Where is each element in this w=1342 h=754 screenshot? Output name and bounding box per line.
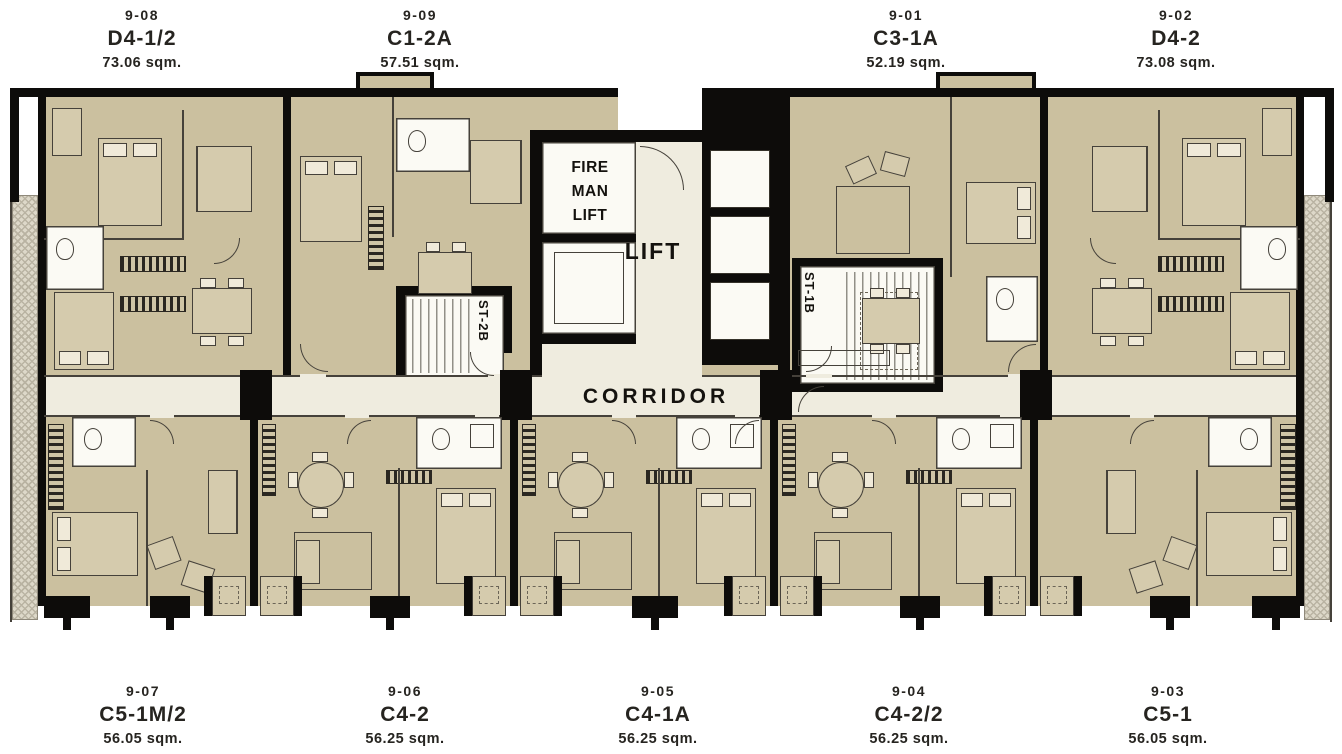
lift-lobby-label: LIFT <box>610 240 696 263</box>
corridor-floor <box>542 344 636 377</box>
furniture <box>1262 108 1292 156</box>
wall <box>504 295 512 353</box>
service-room <box>1240 226 1298 290</box>
corridor-floor <box>806 374 832 378</box>
toilet-icon <box>1240 428 1258 450</box>
wall <box>984 576 992 616</box>
service-room <box>72 417 136 467</box>
wall <box>1040 97 1048 375</box>
service-room <box>46 226 104 290</box>
corridor-floor <box>345 414 369 418</box>
partition-line <box>950 97 952 277</box>
furniture <box>470 140 522 204</box>
unit-label-9-01: 9-01 C3-1A 52.19 sqm. <box>866 8 945 71</box>
unit-type: D4-2 <box>1136 28 1215 49</box>
wall <box>1296 97 1304 606</box>
unit-label-9-02: 9-02 D4-2 73.08 sqm. <box>1136 8 1215 71</box>
wardrobe <box>386 470 432 484</box>
wall <box>778 97 790 377</box>
unit-number: 9-05 <box>618 684 697 698</box>
wall <box>1020 370 1052 420</box>
wall <box>464 576 472 616</box>
chair <box>896 288 910 298</box>
stair-landing <box>787 586 807 604</box>
wall <box>38 97 46 606</box>
corridor-floor <box>542 374 702 378</box>
fireman-line: MAN <box>548 180 632 204</box>
void <box>618 88 702 130</box>
unit-area: 73.06 sqm. <box>102 56 181 71</box>
wall <box>370 596 410 618</box>
toilet-icon <box>996 288 1014 310</box>
chair <box>228 278 244 288</box>
wall <box>724 576 732 616</box>
toilet-icon <box>432 428 450 450</box>
unit-area: 56.05 sqm. <box>1128 732 1207 747</box>
chair <box>228 336 244 346</box>
service-room <box>986 276 1038 342</box>
unit-area: 56.25 sqm. <box>365 732 444 747</box>
partition-line <box>520 140 522 204</box>
wall <box>632 596 678 618</box>
chair <box>1100 336 1116 346</box>
wardrobe <box>646 470 692 484</box>
wall <box>1272 618 1280 630</box>
chair <box>312 508 328 518</box>
chair <box>288 472 298 488</box>
unit-number: 9-06 <box>365 684 444 698</box>
furniture <box>1106 470 1136 534</box>
lift-car <box>710 216 770 274</box>
corridor-label: CORRIDOR <box>506 386 806 407</box>
wardrobe <box>782 424 796 496</box>
unit-area: 57.51 sqm. <box>380 56 459 71</box>
chair <box>604 472 614 488</box>
unit-area: 56.05 sqm. <box>99 732 187 747</box>
toilet-icon <box>692 428 710 450</box>
furniture-outline <box>470 424 494 448</box>
unit-type: C4-2/2 <box>869 704 948 725</box>
wall <box>935 266 943 390</box>
wall <box>150 596 190 618</box>
chair <box>452 242 466 252</box>
unit-area: 56.25 sqm. <box>618 732 697 747</box>
unit-number: 9-02 <box>1136 8 1215 22</box>
wall <box>1252 596 1300 618</box>
chair <box>1128 278 1144 288</box>
unit-type: C4-1A <box>618 704 697 725</box>
wardrobe <box>1280 424 1296 510</box>
wall <box>900 596 940 618</box>
wall <box>63 618 71 630</box>
stair-treads <box>412 299 472 373</box>
unit-label-9-08: 9-08 D4-1/2 73.06 sqm. <box>102 8 181 71</box>
wall <box>283 97 291 375</box>
wall <box>554 576 562 616</box>
wall <box>166 618 174 630</box>
unit-label-9-09: 9-09 C1-2A 57.51 sqm. <box>380 8 459 71</box>
corridor-floor <box>872 414 896 418</box>
unit-label-9-04: 9-04 C4-2/2 56.25 sqm. <box>869 684 948 747</box>
wall <box>792 258 943 266</box>
bed <box>696 488 756 584</box>
stair-landing <box>527 586 547 604</box>
bed <box>966 182 1036 244</box>
partition-line <box>1146 146 1148 212</box>
wardrobe <box>906 470 952 484</box>
furniture <box>862 298 920 344</box>
unit-number: 9-09 <box>380 8 459 22</box>
chair <box>312 452 328 462</box>
wardrobe <box>48 424 64 510</box>
balcony-hatch <box>1304 195 1330 620</box>
unit-label-9-06: 9-06 C4-2 56.25 sqm. <box>365 684 444 747</box>
chair <box>1100 278 1116 288</box>
chair <box>870 288 884 298</box>
corridor-floor <box>150 414 174 418</box>
wall <box>651 618 659 630</box>
furniture <box>1092 146 1148 212</box>
partition-line <box>44 415 1296 417</box>
lift-car <box>710 282 770 340</box>
wall <box>386 618 394 630</box>
corridor-floor <box>300 374 326 378</box>
stair-landing <box>739 586 759 604</box>
unit-number: 9-01 <box>866 8 945 22</box>
stair-landing <box>479 586 499 604</box>
toilet-icon <box>408 130 426 152</box>
unit-area: 56.25 sqm. <box>869 732 948 747</box>
chair <box>1128 336 1144 346</box>
bed <box>1206 512 1292 576</box>
wall <box>916 618 924 630</box>
chair <box>572 452 588 462</box>
partition-line <box>1158 110 1160 240</box>
furniture <box>196 146 252 212</box>
chair <box>548 472 558 488</box>
floor-plan-drawing <box>0 0 1342 754</box>
chair <box>200 336 216 346</box>
wardrobe <box>120 296 186 312</box>
wall <box>250 417 258 606</box>
wall <box>510 417 518 606</box>
unit-area: 52.19 sqm. <box>866 56 945 71</box>
bed <box>54 292 114 370</box>
unit-floor <box>940 76 1032 88</box>
partition-line <box>182 110 184 240</box>
fireman-line: FIRE <box>548 156 632 180</box>
wardrobe <box>368 206 384 270</box>
partition-line <box>1330 202 1332 622</box>
unit-label-9-05: 9-05 C4-1A 56.25 sqm. <box>618 684 697 747</box>
fireman-line: LIFT <box>548 204 632 228</box>
dining-table <box>558 462 604 508</box>
service-room <box>396 118 470 172</box>
furniture <box>52 108 82 156</box>
wall <box>1166 618 1174 630</box>
lift-car <box>710 150 770 208</box>
chair <box>832 452 848 462</box>
wall <box>240 370 272 420</box>
unit-label-9-03: 9-03 C5-1 56.05 sqm. <box>1128 684 1207 747</box>
wardrobe <box>120 256 186 272</box>
stair-landing <box>219 586 239 604</box>
unit-number: 9-04 <box>869 684 948 698</box>
stair-st2b-label: ST-2B <box>476 300 491 370</box>
toilet-icon <box>952 428 970 450</box>
toilet-icon <box>1268 238 1286 260</box>
unit-floor <box>360 76 430 88</box>
wall <box>44 596 90 618</box>
wall <box>770 417 778 606</box>
wall <box>204 576 212 616</box>
chair <box>832 508 848 518</box>
wall <box>530 130 702 142</box>
toilet-icon <box>56 238 74 260</box>
furniture <box>1092 288 1152 334</box>
wall <box>814 576 822 616</box>
unit-number: 9-07 <box>99 684 187 698</box>
wall <box>542 334 636 344</box>
bed <box>300 156 362 242</box>
chair <box>344 472 354 488</box>
partition-line <box>658 468 660 606</box>
furniture-outline <box>990 424 1014 448</box>
wall <box>1325 88 1334 202</box>
wall <box>396 286 405 377</box>
stair-st1b-label: ST-1B <box>802 272 817 346</box>
chair <box>864 472 874 488</box>
furniture <box>192 288 252 334</box>
wardrobe <box>522 424 536 496</box>
furniture <box>208 470 238 534</box>
unit-type: C1-2A <box>380 28 459 49</box>
furniture <box>418 252 472 294</box>
unit-type: C5-1M/2 <box>99 704 187 725</box>
wall <box>530 130 542 377</box>
corridor-floor <box>1130 414 1154 418</box>
bed <box>52 512 138 576</box>
chair <box>572 508 588 518</box>
partition-line <box>398 468 400 606</box>
bed <box>98 138 162 226</box>
wardrobe <box>1158 296 1224 312</box>
stair-landing <box>267 586 287 604</box>
partition-line <box>146 470 148 606</box>
wall <box>1074 576 1082 616</box>
partition-line <box>236 470 238 534</box>
furniture-outline <box>836 186 910 254</box>
dining-table <box>818 462 864 508</box>
unit-type: C4-2 <box>365 704 444 725</box>
wall <box>1150 596 1190 618</box>
stair-landing <box>1047 586 1067 604</box>
partition-line <box>196 146 198 212</box>
unit-label-9-07: 9-07 C5-1M/2 56.05 sqm. <box>99 684 187 747</box>
bed <box>1230 292 1290 370</box>
wall <box>1030 417 1038 606</box>
unit-area: 73.08 sqm. <box>1136 56 1215 71</box>
wall <box>10 88 19 202</box>
bed <box>1182 138 1246 226</box>
chair <box>426 242 440 252</box>
wall <box>792 258 800 390</box>
partition-line <box>10 202 12 622</box>
bed <box>436 488 496 584</box>
toilet-icon <box>84 428 102 450</box>
corridor-floor <box>612 414 636 418</box>
partition-line <box>1196 470 1198 606</box>
chair <box>896 344 910 354</box>
unit-type: C5-1 <box>1128 704 1207 725</box>
partition-line <box>1106 470 1108 534</box>
unit-type: C3-1A <box>866 28 945 49</box>
floor-plan-page: 9-08 D4-1/2 73.06 sqm. 9-09 C1-2A 57.51 … <box>0 0 1342 754</box>
wardrobe <box>1158 256 1224 272</box>
balcony-hatch <box>12 195 38 620</box>
fireman-lift-label: FIRE MAN LIFT <box>548 156 632 228</box>
partition-line <box>392 97 394 237</box>
wall <box>294 576 302 616</box>
chair <box>808 472 818 488</box>
unit-type: D4-1/2 <box>102 28 181 49</box>
dining-table <box>298 462 344 508</box>
stair-landing <box>999 586 1019 604</box>
unit-number: 9-03 <box>1128 684 1207 698</box>
wardrobe <box>262 424 276 496</box>
unit-number: 9-08 <box>102 8 181 22</box>
partition-line <box>918 468 920 606</box>
bed <box>956 488 1016 584</box>
chair <box>200 278 216 288</box>
